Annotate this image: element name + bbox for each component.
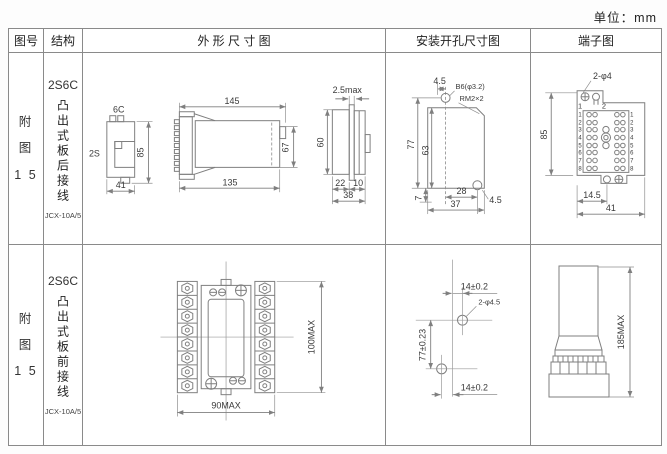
structure-desc: 凸出式板前接线 bbox=[55, 295, 72, 400]
svg-text:8: 8 bbox=[630, 166, 634, 172]
outline-drawing-front-wiring: 100MAX 90MAX bbox=[83, 245, 386, 445]
mounting-drawing-row1: 4.5 B6(φ3.2) RM2×2 77 63 7 28 bbox=[386, 53, 531, 245]
svg-text:3: 3 bbox=[578, 128, 582, 134]
dim-60: 60 bbox=[315, 138, 325, 148]
spec-table: 图号 结构 外 形 尺 寸 图 安装开孔尺寸图 端子图 附 图 1 5 2S6C… bbox=[8, 28, 662, 446]
dim-90max: 90MAX bbox=[211, 401, 240, 411]
terminal-drawing-row2: 185MAX bbox=[531, 245, 661, 445]
dim-7: 7 bbox=[414, 196, 424, 201]
relay-on-socket-svg: 185MAX bbox=[531, 245, 661, 445]
header-outline: 外 形 尺 寸 图 bbox=[83, 29, 386, 53]
svg-text:5: 5 bbox=[630, 144, 634, 150]
dim-77-pitch: 77±0.23 bbox=[418, 329, 428, 361]
outline-svg-row1: 6C 2S 85 41 bbox=[83, 53, 385, 244]
structure-note: JCX-10A/5 bbox=[45, 407, 81, 416]
dim-4-5-top: 4.5 bbox=[433, 76, 445, 86]
svg-text:5: 5 bbox=[578, 144, 582, 150]
dim-85-terminal: 85 bbox=[539, 130, 549, 140]
mounting-svg-row1: 4.5 B6(φ3.2) RM2×2 77 63 7 28 bbox=[386, 53, 530, 244]
col-label-2: 2 bbox=[602, 102, 606, 111]
dim-10: 10 bbox=[353, 178, 363, 188]
svg-text:4: 4 bbox=[630, 136, 634, 142]
svg-text:6: 6 bbox=[578, 150, 582, 156]
structure-note: JCX-10A/5 bbox=[45, 211, 81, 220]
svg-text:1: 1 bbox=[630, 113, 634, 119]
dim-41: 41 bbox=[116, 180, 126, 190]
terminal-row-numbers-left: 1 2 3 4 5 6 7 8 bbox=[578, 113, 582, 173]
dim-37: 37 bbox=[451, 199, 461, 209]
header-mounting: 安装开孔尺寸图 bbox=[386, 29, 531, 53]
socket-front-view-svg: 100MAX 90MAX bbox=[83, 245, 385, 445]
terminal-svg-row1: 2-φ4 1 2 bbox=[531, 53, 661, 244]
svg-text:8: 8 bbox=[578, 166, 582, 172]
svg-text:7: 7 bbox=[578, 158, 582, 164]
svg-text:4: 4 bbox=[578, 136, 582, 142]
svg-text:1: 1 bbox=[578, 113, 582, 119]
hole-label-2phi4: 2-φ4 bbox=[593, 71, 612, 81]
socket-comb bbox=[558, 356, 598, 362]
hole-spec-label: B6(φ3.2) bbox=[456, 82, 486, 91]
socket-cells bbox=[560, 362, 596, 374]
fig-no-row1: 附 图 1 5 bbox=[9, 53, 44, 245]
svg-text:7: 7 bbox=[630, 158, 634, 164]
dim-38: 38 bbox=[343, 190, 353, 200]
dim-2-5max: 2.5max bbox=[333, 85, 363, 95]
locating-tab-top bbox=[593, 93, 600, 104]
svg-text:6: 6 bbox=[630, 150, 634, 156]
dim-14-bottom: 14±0.2 bbox=[461, 383, 488, 393]
dim-14-top: 14±0.2 bbox=[461, 281, 488, 291]
mounting-drawing-row2: 2-φ4.5 14±0.2 77±0.23 14±0.2 bbox=[386, 245, 531, 445]
panel-flange-view: 2.5max 60 bbox=[315, 85, 370, 204]
dim-185max: 185MAX bbox=[616, 315, 626, 350]
mounting-screw-top bbox=[581, 93, 589, 101]
structure-model: 2S6C bbox=[48, 78, 78, 92]
terminal-column-right bbox=[255, 281, 275, 392]
dim-14-5: 14.5 bbox=[583, 190, 600, 200]
dim-67: 67 bbox=[281, 143, 291, 153]
structure-desc: 凸出式板后接线 bbox=[55, 99, 72, 204]
dim-41-terminal: 41 bbox=[606, 203, 616, 213]
col-label-1: 1 bbox=[578, 102, 582, 111]
structure-row2: 2S6C 凸出式板前接线 JCX-10A/5 bbox=[44, 245, 83, 445]
dim-63: 63 bbox=[421, 145, 431, 155]
end-profile-view: 6C 2S 85 41 bbox=[89, 105, 153, 194]
structure-row1: 2S6C 凸出式板后接线 JCX-10A/5 bbox=[44, 53, 83, 245]
svg-text:2: 2 bbox=[630, 121, 634, 127]
relay-side-view: 145 67 bbox=[174, 96, 297, 192]
dim-85: 85 bbox=[136, 147, 146, 157]
dim-4-5-right: 4.5 bbox=[489, 195, 501, 205]
dim-28: 28 bbox=[456, 186, 466, 196]
dim-135: 135 bbox=[223, 177, 238, 187]
hole-label-2phi45: 2-φ4.5 bbox=[478, 297, 500, 306]
terminal-row-numbers-right: 1 2 3 4 5 6 7 8 bbox=[630, 113, 634, 173]
terminal-drawing-row1: 2-φ4 1 2 bbox=[531, 53, 661, 245]
svg-text:2: 2 bbox=[578, 121, 582, 127]
header-terminal: 端子图 bbox=[531, 29, 661, 53]
mounting-svg-row2: 2-φ4.5 14±0.2 77±0.23 14±0.2 bbox=[386, 245, 530, 445]
header-fig-no: 图号 bbox=[9, 29, 44, 53]
dim-2s: 2S bbox=[89, 148, 100, 158]
header-structure: 结构 bbox=[44, 29, 83, 53]
terminal-contacts bbox=[587, 112, 625, 170]
dim-77: 77 bbox=[406, 140, 416, 150]
svg-text:3: 3 bbox=[630, 128, 634, 134]
dim-6c: 6C bbox=[113, 105, 125, 115]
outline-drawing-rear-wiring: 6C 2S 85 41 bbox=[83, 53, 386, 245]
thread-spec-label: RM2×2 bbox=[459, 94, 483, 103]
unit-label: 单位：mm bbox=[594, 7, 657, 26]
structure-model: 2S6C bbox=[48, 274, 78, 288]
fig-no-row2: 附 图 1 5 bbox=[9, 245, 44, 445]
datasheet-page: 单位：mm 图号 结构 外 形 尺 寸 图 安装开孔尺寸图 端子图 附 图 1 … bbox=[0, 0, 667, 454]
dim-100max: 100MAX bbox=[306, 320, 316, 354]
terminal-column-left bbox=[177, 281, 197, 392]
locating-tab-bottom bbox=[603, 175, 622, 183]
dim-22: 22 bbox=[335, 178, 345, 188]
dim-145: 145 bbox=[225, 96, 240, 106]
